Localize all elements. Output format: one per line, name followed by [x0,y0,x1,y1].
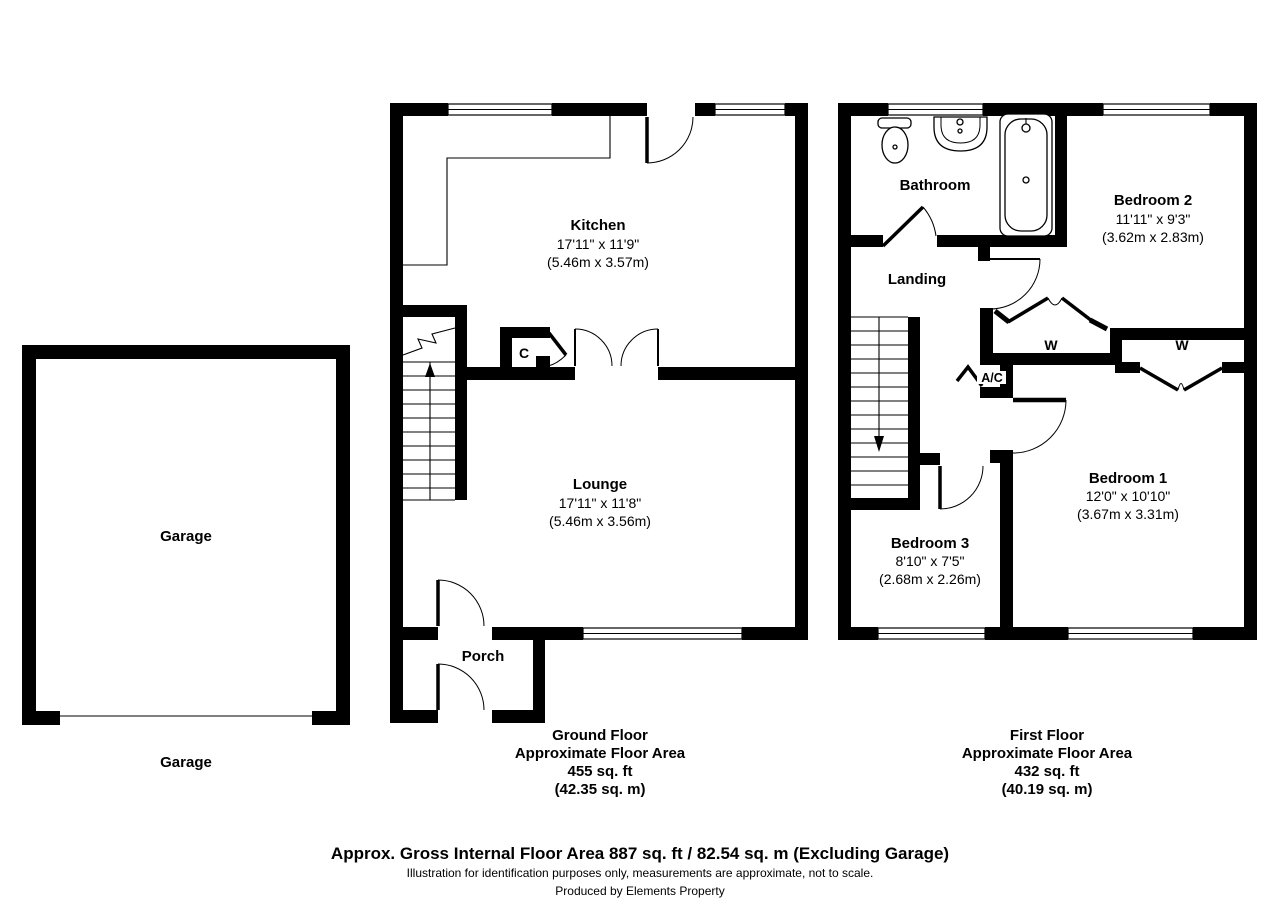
ff-bed3-wall-top [917,453,940,465]
ground-floor-stairs [403,328,455,500]
gf-porch-wall-bottom [492,710,545,723]
gf-wall-left [390,103,403,723]
sink-drain-icon [958,129,962,133]
ground-caption-line3: 455 sq. ft [567,763,632,780]
airing-cupboard-label: A/C [981,371,1003,385]
ground-floor-doors [438,117,693,710]
ff-wall [985,627,1068,640]
double-door-right-arc [621,329,658,366]
ff-bathroom-divider [1055,103,1067,247]
gf-wall [552,103,647,116]
back-door-arc [647,117,693,163]
stair-up-arrow [425,363,435,377]
wardrobe2-bifold-panel [1184,368,1222,390]
disclaimer-text: Illustration for identification purposes… [407,866,874,880]
gf-divider-wall [658,367,795,380]
gf-wall [403,627,438,640]
lounge-dims-imperial: 17'11" x 11'8" [559,495,642,511]
bedroom3-label: Bedroom 3 [891,535,969,552]
ff-wardrobe2-stub [1115,362,1140,373]
ff-wall [838,627,878,640]
bathroom-label: Bathroom [900,177,971,194]
wardrobe1-bifold-panel [1008,298,1048,322]
landing-label: Landing [888,271,946,288]
double-door-left-arc [575,329,612,366]
bedroom1-door-arc [1013,400,1066,453]
wardrobe1-bifold-arc [1048,298,1062,305]
bath-drain-icon [1023,177,1029,183]
bedroom3-door-arc [940,466,983,509]
bedroom2-dims-metric: (3.62m x 2.83m) [1102,229,1204,245]
cupboard-label: C [519,345,529,361]
bathroom-door-arc [923,207,936,236]
ff-bed2-door-stub [978,247,990,261]
wardrobe-left-label: W [1044,337,1058,353]
ff-wall-left [838,103,851,640]
ff-stairs-wall-bottom [851,498,920,510]
gf-stairs-wall-top [403,305,467,317]
floorplan-page: Garage Garage [0,0,1280,905]
stair-break-line [403,328,455,355]
bedroom2-dims-imperial: 11'11" x 9'3" [1116,211,1191,227]
garage-caption: Garage [160,754,212,771]
lounge-label: Lounge [573,476,627,493]
ff-wall [1193,627,1257,640]
gf-wall [545,627,583,640]
ff-bed1-bed3-divider [1000,453,1013,640]
ff-wall-right [1244,103,1257,640]
bedroom3-dims-imperial: 8'10" x 7'5" [896,553,965,569]
ff-wardrobe1-wall-bottom [980,353,1122,365]
bath-tap-icon [1022,124,1030,132]
bedroom1-dims-imperial: 12'0" x 10'10" [1086,488,1171,504]
garage-wall-bottom-left-stub [22,711,60,725]
bathroom-door-panel [883,207,923,246]
gross-area-text: Approx. Gross Internal Floor Area 887 sq… [331,844,949,863]
cupboard-door-panel [549,333,566,355]
bedroom3-dims-metric: (2.68m x 2.26m) [879,571,981,587]
gf-wall [695,103,715,116]
garage-plan: Garage Garage [22,345,350,771]
first-caption-line3: 432 sq. ft [1014,763,1079,780]
first-caption-line4: (40.19 sq. m) [1002,781,1093,798]
ground-floor-plan: Kitchen 17'11" x 11'9" (5.46m x 3.57m) L… [390,103,808,798]
footer-text: Approx. Gross Internal Floor Area 887 sq… [331,844,949,898]
gf-wall-right [795,103,808,640]
ground-caption-line4: (42.35 sq. m) [555,781,646,798]
ff-bathroom-wall [937,235,1067,247]
lounge-dims-metric: (5.46m x 3.56m) [549,513,651,529]
wardrobe1-bifold-stub [1090,320,1107,329]
gf-stairs-wall-right [455,317,467,500]
gf-wall [742,627,808,640]
kitchen-dims-imperial: 17'11" x 11'9" [557,236,640,252]
first-floor-plan: Bathroom Landing Bedroom 2 11'11" x 9'3"… [838,103,1257,798]
gf-wall [492,627,545,640]
wardrobe2-bifold-arc [1178,384,1184,391]
ff-stairs-wall-right [908,317,920,510]
wardrobe2-bifold-panel [1140,368,1178,390]
kitchen-dims-metric: (5.46m x 3.57m) [547,254,649,270]
stair-down-arrow [874,436,884,452]
ground-caption-line1: Ground Floor [552,727,648,744]
first-floor-stairs [851,317,908,485]
ff-bathroom-wall [851,235,883,247]
porch-label: Porch [462,648,505,665]
garage-wall-top [22,345,350,359]
gf-cupboard-stub [536,356,550,367]
garage-wall-right [336,345,350,725]
bedroom1-label: Bedroom 1 [1089,470,1167,487]
front-door-arc [438,664,484,710]
bedroom2-label: Bedroom 2 [1114,192,1192,209]
first-caption-line2: Approximate Floor Area [962,745,1133,762]
gf-porch-wall-bottom [390,710,438,723]
bathroom-fixtures [878,114,1052,236]
bath-inner-line [1005,119,1047,231]
gf-cupboard-wall-left [500,327,512,369]
floorplan-canvas: Garage Garage [0,0,1280,905]
toilet-drain-icon [893,145,897,149]
bedroom1-dims-metric: (3.67m x 3.31m) [1077,506,1179,522]
produced-by-text: Produced by Elements Property [555,884,724,898]
sink-tap-icon [957,119,963,125]
first-caption-line1: First Floor [1010,727,1084,744]
wardrobe1-bifold-stub [995,311,1009,322]
cupboard-door-arc [548,355,566,366]
garage-wall-bottom-right-stub [312,711,350,725]
gf-divider-wall [467,367,575,380]
wardrobe1-bifold-panel [1062,298,1092,321]
ff-wardrobe2-stub [1222,362,1244,373]
wardrobe-right-label: W [1175,337,1189,353]
ff-airing-wall-bottom [980,387,1013,398]
garage-wall-left [22,345,36,725]
ground-caption-line2: Approximate Floor Area [515,745,686,762]
kitchen-label: Kitchen [570,217,625,234]
garage-room-label: Garage [160,528,212,545]
porch-inner-door-arc [438,580,484,626]
bedroom2-door-arc [990,259,1040,309]
stair-treads [403,362,455,500]
